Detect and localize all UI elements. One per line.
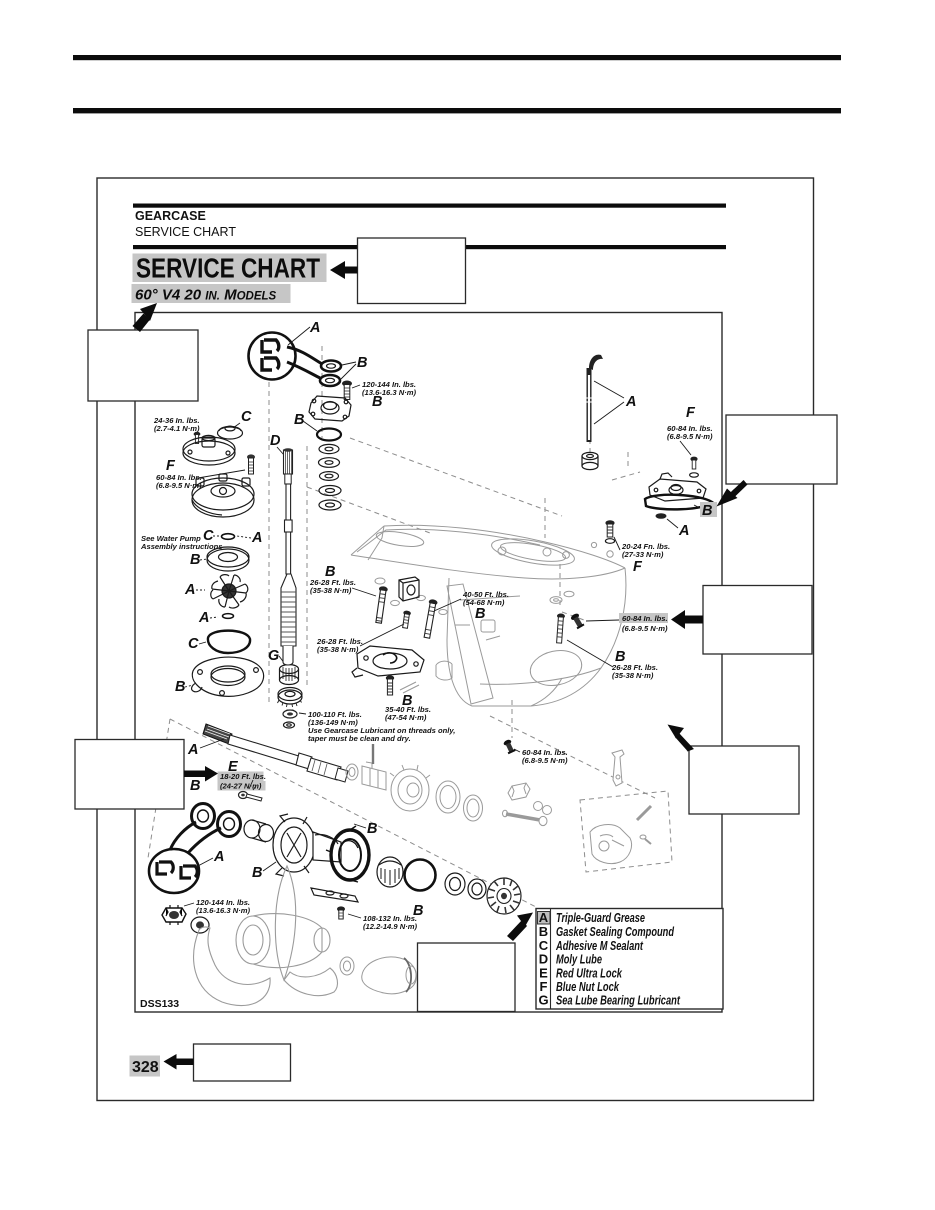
svg-text:(2.7-4.1 N·m): (2.7-4.1 N·m) — [154, 424, 200, 433]
svg-text:DSS133: DSS133 — [140, 998, 179, 1010]
svg-text:B: B — [190, 552, 200, 568]
svg-text:Moly Lube: Moly Lube — [556, 953, 602, 967]
svg-text:C: C — [203, 528, 214, 544]
svg-text:B: B — [367, 821, 377, 837]
svg-text:D: D — [270, 433, 281, 449]
svg-text:A: A — [678, 523, 689, 539]
svg-text:G: G — [538, 993, 548, 1008]
svg-text:B: B — [372, 394, 382, 410]
svg-text:(6.8-9.5 N·m): (6.8-9.5 N·m) — [667, 432, 713, 441]
svg-text:SERVICE CHART: SERVICE CHART — [135, 225, 236, 239]
svg-text:(12.2-14.9 N·m): (12.2-14.9 N·m) — [363, 922, 417, 931]
svg-text:B: B — [252, 865, 262, 881]
svg-text:B: B — [475, 606, 485, 622]
svg-text:D: D — [539, 952, 548, 967]
svg-text:(35-38 N·m): (35-38 N·m) — [310, 586, 352, 595]
svg-text:(35-38 N·m): (35-38 N·m) — [612, 671, 654, 680]
svg-text:A: A — [539, 910, 549, 925]
svg-text:(47-54 N·m): (47-54 N·m) — [385, 713, 427, 722]
svg-text:B: B — [294, 412, 304, 428]
svg-text:A: A — [251, 530, 262, 546]
svg-text:(13.6-16.3 N·m): (13.6-16.3 N·m) — [196, 906, 250, 915]
svg-text:C: C — [241, 409, 252, 425]
svg-text:B: B — [190, 778, 200, 794]
svg-text:Blue Nut Lock: Blue Nut Lock — [556, 980, 620, 994]
svg-text:18-20 Ft. lbs.: 18-20 Ft. lbs. — [220, 772, 266, 781]
svg-text:A: A — [625, 394, 636, 410]
svg-text:(27-33 N·m): (27-33 N·m) — [622, 550, 664, 559]
svg-text:(6.8-9.5 N·m): (6.8-9.5 N·m) — [522, 756, 568, 765]
svg-text:(6.8-9.5 N·m): (6.8-9.5 N·m) — [156, 481, 202, 490]
svg-text:Adhesive M Sealant: Adhesive M Sealant — [555, 939, 643, 953]
svg-text:GEARCASE: GEARCASE — [135, 209, 206, 223]
svg-text:B: B — [539, 924, 548, 939]
svg-text:B: B — [175, 679, 185, 695]
svg-text:F: F — [166, 458, 176, 474]
svg-text:(35-38 N·m): (35-38 N·m) — [317, 645, 359, 654]
svg-text:Triple-Guard Grease: Triple-Guard Grease — [556, 911, 645, 925]
svg-text:B: B — [702, 503, 712, 519]
svg-text:F: F — [633, 559, 643, 575]
svg-text:A: A — [213, 849, 224, 865]
svg-text:Gasket Sealing Compound: Gasket Sealing Compound — [556, 925, 674, 939]
svg-text:A: A — [187, 742, 198, 758]
svg-text:328: 328 — [132, 1059, 159, 1076]
svg-text:(13.6-16.3 N·m): (13.6-16.3 N·m) — [362, 388, 416, 397]
svg-text:(6.8-9.5 N·m): (6.8-9.5 N·m) — [622, 624, 668, 633]
svg-text:60-84 In. lbs.: 60-84 In. lbs. — [622, 614, 668, 623]
svg-text:C: C — [188, 636, 199, 652]
svg-text:A: A — [198, 610, 209, 626]
svg-text:A: A — [309, 320, 320, 336]
svg-text:B: B — [357, 355, 367, 371]
svg-text:SERVICE CHART: SERVICE CHART — [136, 253, 320, 284]
svg-text:Red Ultra Lock: Red Ultra Lock — [556, 967, 623, 981]
svg-text:F: F — [686, 405, 696, 421]
svg-text:Sea Lube Bearing Lubricant: Sea Lube Bearing Lubricant — [556, 994, 681, 1008]
svg-text:A: A — [184, 582, 195, 598]
svg-text:G: G — [268, 648, 279, 664]
svg-text:taper must be clean and dry.: taper must be clean and dry. — [308, 734, 411, 743]
